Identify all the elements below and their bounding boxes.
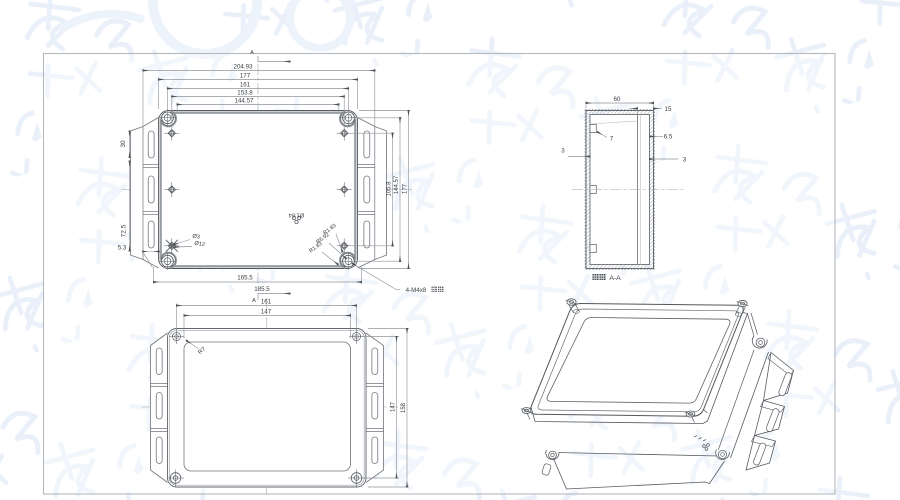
svg-text:204.93: 204.93 [234, 64, 253, 71]
svg-text:185.5: 185.5 [254, 286, 270, 293]
svg-text:5.3: 5.3 [118, 245, 127, 252]
svg-text:177: 177 [403, 183, 409, 194]
svg-text:30: 30 [120, 140, 127, 148]
svg-text:105.8: 105.8 [387, 181, 393, 197]
svg-text:A: A [252, 298, 256, 304]
svg-text:3: 3 [683, 157, 687, 164]
svg-text:161: 161 [261, 299, 272, 306]
svg-text:3: 3 [561, 148, 565, 155]
svg-text:158: 158 [401, 402, 407, 413]
svg-text:177: 177 [240, 73, 251, 80]
svg-text:4-M4x8: 4-M4x8 [406, 287, 427, 294]
svg-text:144.57: 144.57 [394, 175, 400, 194]
svg-text:15: 15 [665, 106, 672, 113]
svg-text:161: 161 [240, 82, 251, 89]
svg-text:7: 7 [610, 136, 614, 143]
svg-text:147: 147 [391, 401, 397, 412]
svg-text:A-A: A-A [609, 275, 621, 282]
svg-text:147: 147 [261, 309, 272, 316]
svg-text:60: 60 [614, 96, 621, 103]
svg-text:153.8: 153.8 [237, 90, 253, 97]
svg-text:144.57: 144.57 [235, 98, 254, 105]
svg-text:Ø3: Ø3 [192, 234, 200, 241]
svg-text:A: A [250, 50, 254, 56]
svg-text:72.5: 72.5 [121, 224, 128, 237]
svg-text:Ø1.64: Ø1.64 [288, 212, 305, 218]
svg-text:165.5: 165.5 [237, 275, 253, 282]
svg-text:6.5: 6.5 [664, 134, 673, 141]
